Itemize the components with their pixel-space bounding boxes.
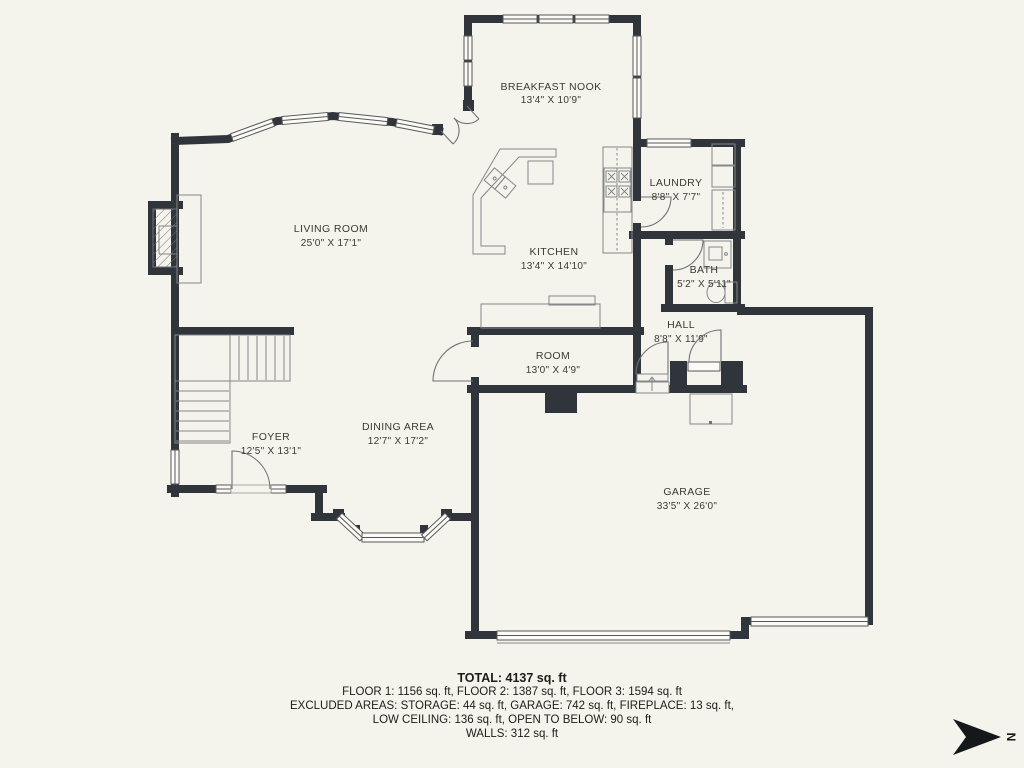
svg-text:5'2" X 5'11": 5'2" X 5'11" [677,279,731,290]
floorplan-canvas: BREAKFAST NOOK 13'4" X 10'9" LIVING ROOM… [0,0,1024,768]
room-door [433,341,473,381]
room-label-kitchen: KITCHEN 13'4" X 14'10" [521,246,587,272]
room-label-living-room: LIVING ROOM 25'0" X 17'1" [294,223,368,249]
room-label-dining-area: DINING AREA 12'7" X 17'2" [362,421,434,447]
dining-bay-windows [337,513,451,542]
laundry-appliances [712,144,735,230]
garage-stoop [690,394,732,424]
wall-dots [175,299,869,637]
svg-text:LAUNDRY: LAUNDRY [650,177,703,189]
garage-pier [545,393,577,413]
svg-text:12'7" X 17'2": 12'7" X 17'2" [368,436,429,447]
laundry-window [647,139,691,147]
room-label-room: ROOM 13'0" X 4'9" [526,350,581,376]
svg-text:BATH: BATH [690,264,719,276]
hall-garage-door-threshold [688,362,720,371]
breakfast-nook-double-door [441,106,479,144]
room-label-foyer: FOYER 12'5" X 13'1" [241,431,302,457]
area-summary: TOTAL: 4137 sq. ft FLOOR 1: 1156 sq. ft,… [0,671,1024,741]
summary-excluded1: EXCLUDED AREAS: STORAGE: 44 sq. ft, GARA… [0,699,1024,713]
hall-jamb-right [721,361,743,391]
svg-text:12'5" X 13'1": 12'5" X 13'1" [241,446,302,457]
hall-entry-steps [636,374,669,393]
svg-text:8'8" X 7'7": 8'8" X 7'7" [652,192,701,203]
svg-text:DINING AREA: DINING AREA [362,421,434,433]
summary-walls: WALLS: 312 sq. ft [0,727,1024,741]
room-label-breakfast-nook: BREAKFAST NOOK 13'4" X 10'9" [500,81,601,106]
summary-floors: FLOOR 1: 1156 sq. ft, FLOOR 2: 1387 sq. … [0,685,1024,699]
hall-jamb-left [670,361,687,391]
summary-total: TOTAL: 4137 sq. ft [0,671,1024,685]
svg-text:KITCHEN: KITCHEN [530,246,579,258]
svg-text:25'0" X 17'1": 25'0" X 17'1" [301,238,362,249]
garage-door [497,631,730,643]
room-label-laundry: LAUNDRY 8'8" X 7'7" [650,177,703,203]
kitchen-island [528,161,553,184]
summary-excluded2: LOW CEILING: 136 sq. ft, OPEN TO BELOW: … [0,713,1024,727]
breakfast-nook-top-windows [503,15,609,23]
svg-text:33'5" X 26'0": 33'5" X 26'0" [657,501,718,512]
svg-text:BREAKFAST NOOK: BREAKFAST NOOK [500,81,601,93]
svg-text:HALL: HALL [667,319,695,331]
svg-text:GARAGE: GARAGE [663,486,710,498]
svg-text:13'4" X 14'10": 13'4" X 14'10" [521,261,587,272]
kitchen-wall-counter [603,147,632,253]
room-label-hall: HALL 8'8" X 11'9" [654,319,708,345]
svg-text:ROOM: ROOM [536,350,570,362]
front-door-opening [231,485,271,493]
staircase [175,335,290,443]
garage-right-window [751,617,868,626]
room-counter [481,296,600,328]
svg-text:8'8" X 11'9": 8'8" X 11'9" [654,334,708,345]
svg-text:FOYER: FOYER [252,431,290,443]
kitchen-peninsula [473,149,556,254]
svg-text:13'4" X 10'9": 13'4" X 10'9" [521,95,582,106]
kitchen-sink [484,168,516,198]
foyer-left-window [171,450,179,484]
floorplan-page: { "floorplan": { "rooms": [ {"name": "BR… [0,0,1024,768]
svg-text:LIVING ROOM: LIVING ROOM [294,223,368,235]
svg-text:13'0" X 4'9": 13'0" X 4'9" [526,365,581,376]
room-label-garage: GARAGE 33'5" X 26'0" [657,486,718,512]
